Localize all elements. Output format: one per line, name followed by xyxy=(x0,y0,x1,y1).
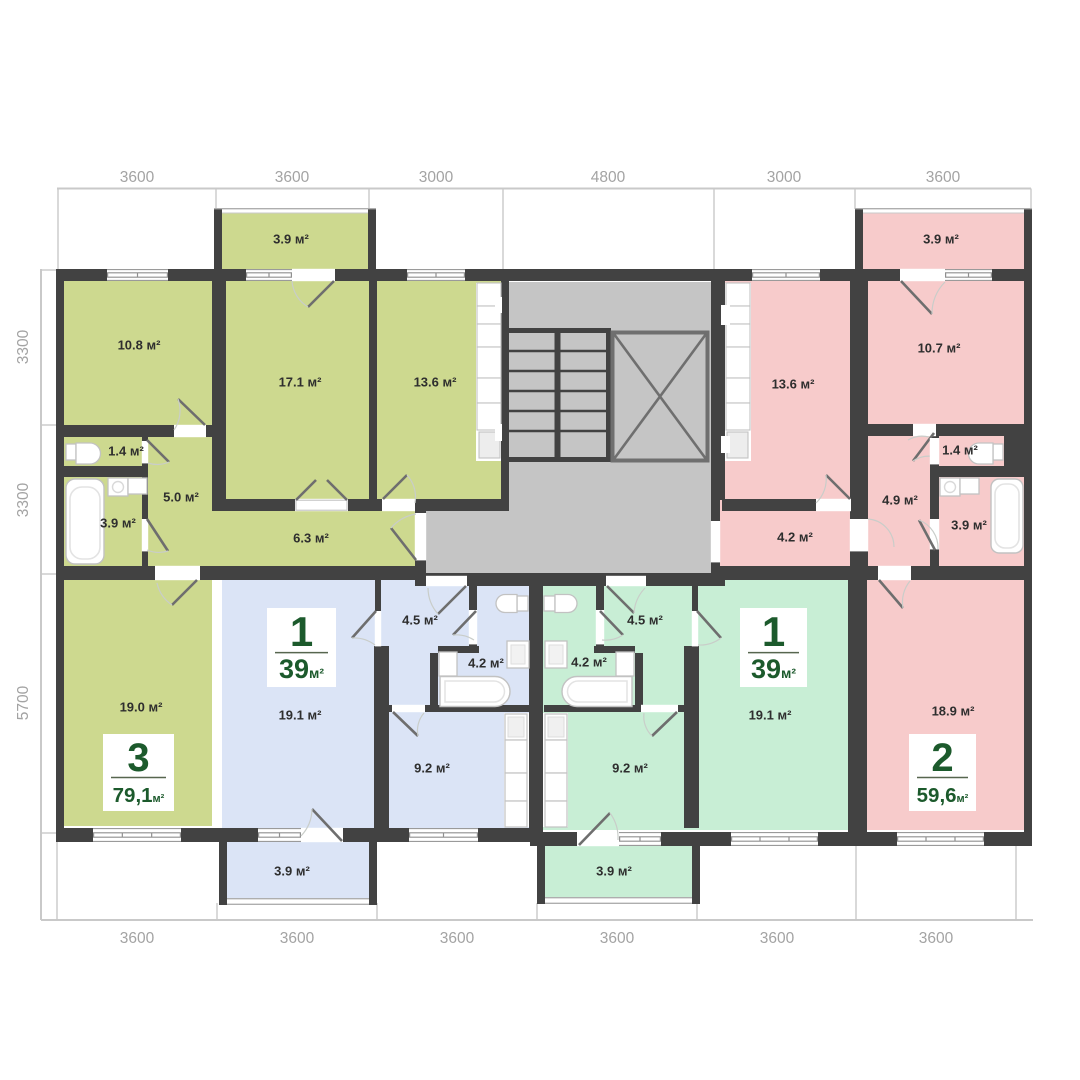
svg-text:3.9 м²: 3.9 м² xyxy=(596,864,632,879)
svg-text:3600: 3600 xyxy=(919,930,954,947)
svg-text:4.2 м²: 4.2 м² xyxy=(571,655,607,670)
svg-text:19.1 м²: 19.1 м² xyxy=(279,708,323,723)
svg-text:4.9 м²: 4.9 м² xyxy=(882,493,918,508)
svg-text:10.7 м²: 10.7 м² xyxy=(918,341,962,356)
svg-text:19.0 м²: 19.0 м² xyxy=(120,700,164,715)
svg-text:3600: 3600 xyxy=(760,930,795,947)
svg-text:3000: 3000 xyxy=(767,169,802,186)
svg-text:19.1 м²: 19.1 м² xyxy=(749,708,793,723)
svg-text:1: 1 xyxy=(290,608,313,655)
svg-text:10.8 м²: 10.8 м² xyxy=(118,338,162,353)
svg-text:3: 3 xyxy=(127,736,149,780)
svg-text:5700: 5700 xyxy=(15,685,32,720)
svg-text:3.9 м²: 3.9 м² xyxy=(100,516,136,531)
svg-text:17.1 м²: 17.1 м² xyxy=(279,375,323,390)
svg-text:6.3 м²: 6.3 м² xyxy=(293,531,329,546)
svg-text:2: 2 xyxy=(931,736,953,780)
svg-text:3.9 м²: 3.9 м² xyxy=(951,518,987,533)
svg-text:3000: 3000 xyxy=(419,169,454,186)
svg-text:3300: 3300 xyxy=(15,329,32,364)
svg-text:1: 1 xyxy=(762,608,785,655)
svg-text:3600: 3600 xyxy=(600,930,635,947)
svg-text:1.4 м²: 1.4 м² xyxy=(108,444,144,459)
svg-text:9.2 м²: 9.2 м² xyxy=(612,761,648,776)
svg-text:1.4 м²: 1.4 м² xyxy=(942,443,978,458)
svg-text:3600: 3600 xyxy=(120,169,155,186)
svg-text:13.6 м²: 13.6 м² xyxy=(772,377,816,392)
svg-text:5.0 м²: 5.0 м² xyxy=(163,490,199,505)
svg-text:3.9 м²: 3.9 м² xyxy=(923,232,959,247)
svg-text:4800: 4800 xyxy=(591,169,626,186)
svg-text:3.9 м²: 3.9 м² xyxy=(273,232,309,247)
svg-text:3300: 3300 xyxy=(15,482,32,517)
svg-text:4.2 м²: 4.2 м² xyxy=(468,656,504,671)
svg-text:3600: 3600 xyxy=(120,930,155,947)
svg-text:13.6 м²: 13.6 м² xyxy=(414,375,458,390)
svg-text:4.5 м²: 4.5 м² xyxy=(627,613,663,628)
svg-text:3600: 3600 xyxy=(275,169,310,186)
svg-text:3600: 3600 xyxy=(440,930,475,947)
svg-text:4.5 м²: 4.5 м² xyxy=(402,613,438,628)
svg-text:18.9 м²: 18.9 м² xyxy=(932,704,976,719)
svg-text:4.2 м²: 4.2 м² xyxy=(777,530,813,545)
svg-text:3.9 м²: 3.9 м² xyxy=(274,864,310,879)
svg-text:3600: 3600 xyxy=(926,169,961,186)
svg-text:9.2 м²: 9.2 м² xyxy=(414,761,450,776)
svg-text:3600: 3600 xyxy=(280,930,315,947)
